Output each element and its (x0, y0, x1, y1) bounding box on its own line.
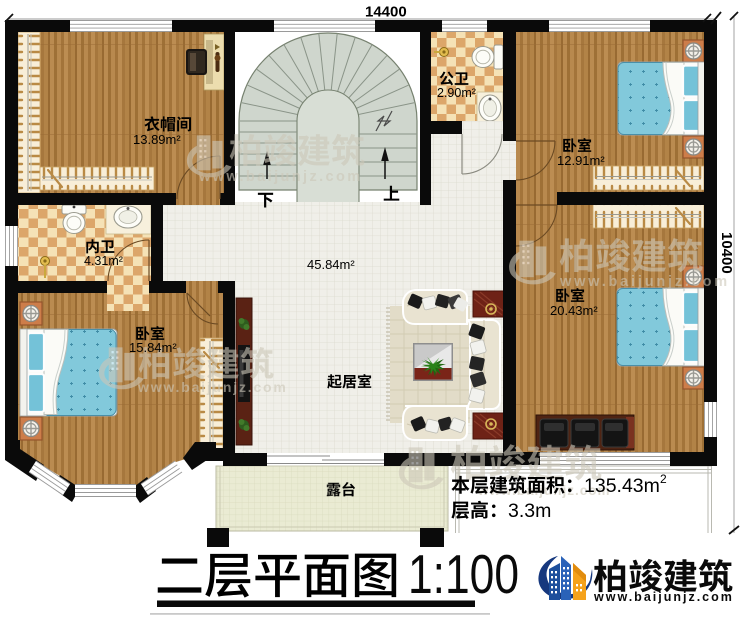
svg-text:10400: 10400 (718, 232, 735, 274)
svg-text:3.3m: 3.3m (508, 500, 551, 522)
svg-text:1:100: 1:100 (408, 543, 519, 605)
svg-text:14400: 14400 (365, 4, 407, 21)
svg-text:13.89m²: 13.89m² (133, 132, 181, 147)
svg-text:www.baijunjz.com: www.baijunjz.com (593, 590, 734, 604)
svg-text:www.baijunjz.com: www.baijunjz.com (137, 379, 288, 395)
svg-text:12.91m²: 12.91m² (557, 153, 605, 168)
svg-text:2: 2 (660, 472, 667, 486)
svg-text:15.84m²: 15.84m² (129, 340, 177, 355)
svg-text:www.baijunjz.com: www.baijunjz.com (198, 169, 363, 185)
svg-text:4.31m²: 4.31m² (84, 254, 123, 268)
svg-text:20.43m²: 20.43m² (550, 303, 598, 318)
svg-text:45.84m²: 45.84m² (307, 257, 355, 272)
svg-text:2.90m²: 2.90m² (437, 86, 476, 100)
svg-text:www.baijunjz.com: www.baijunjz.com (559, 274, 730, 290)
svg-text:135.43m: 135.43m (584, 475, 660, 497)
